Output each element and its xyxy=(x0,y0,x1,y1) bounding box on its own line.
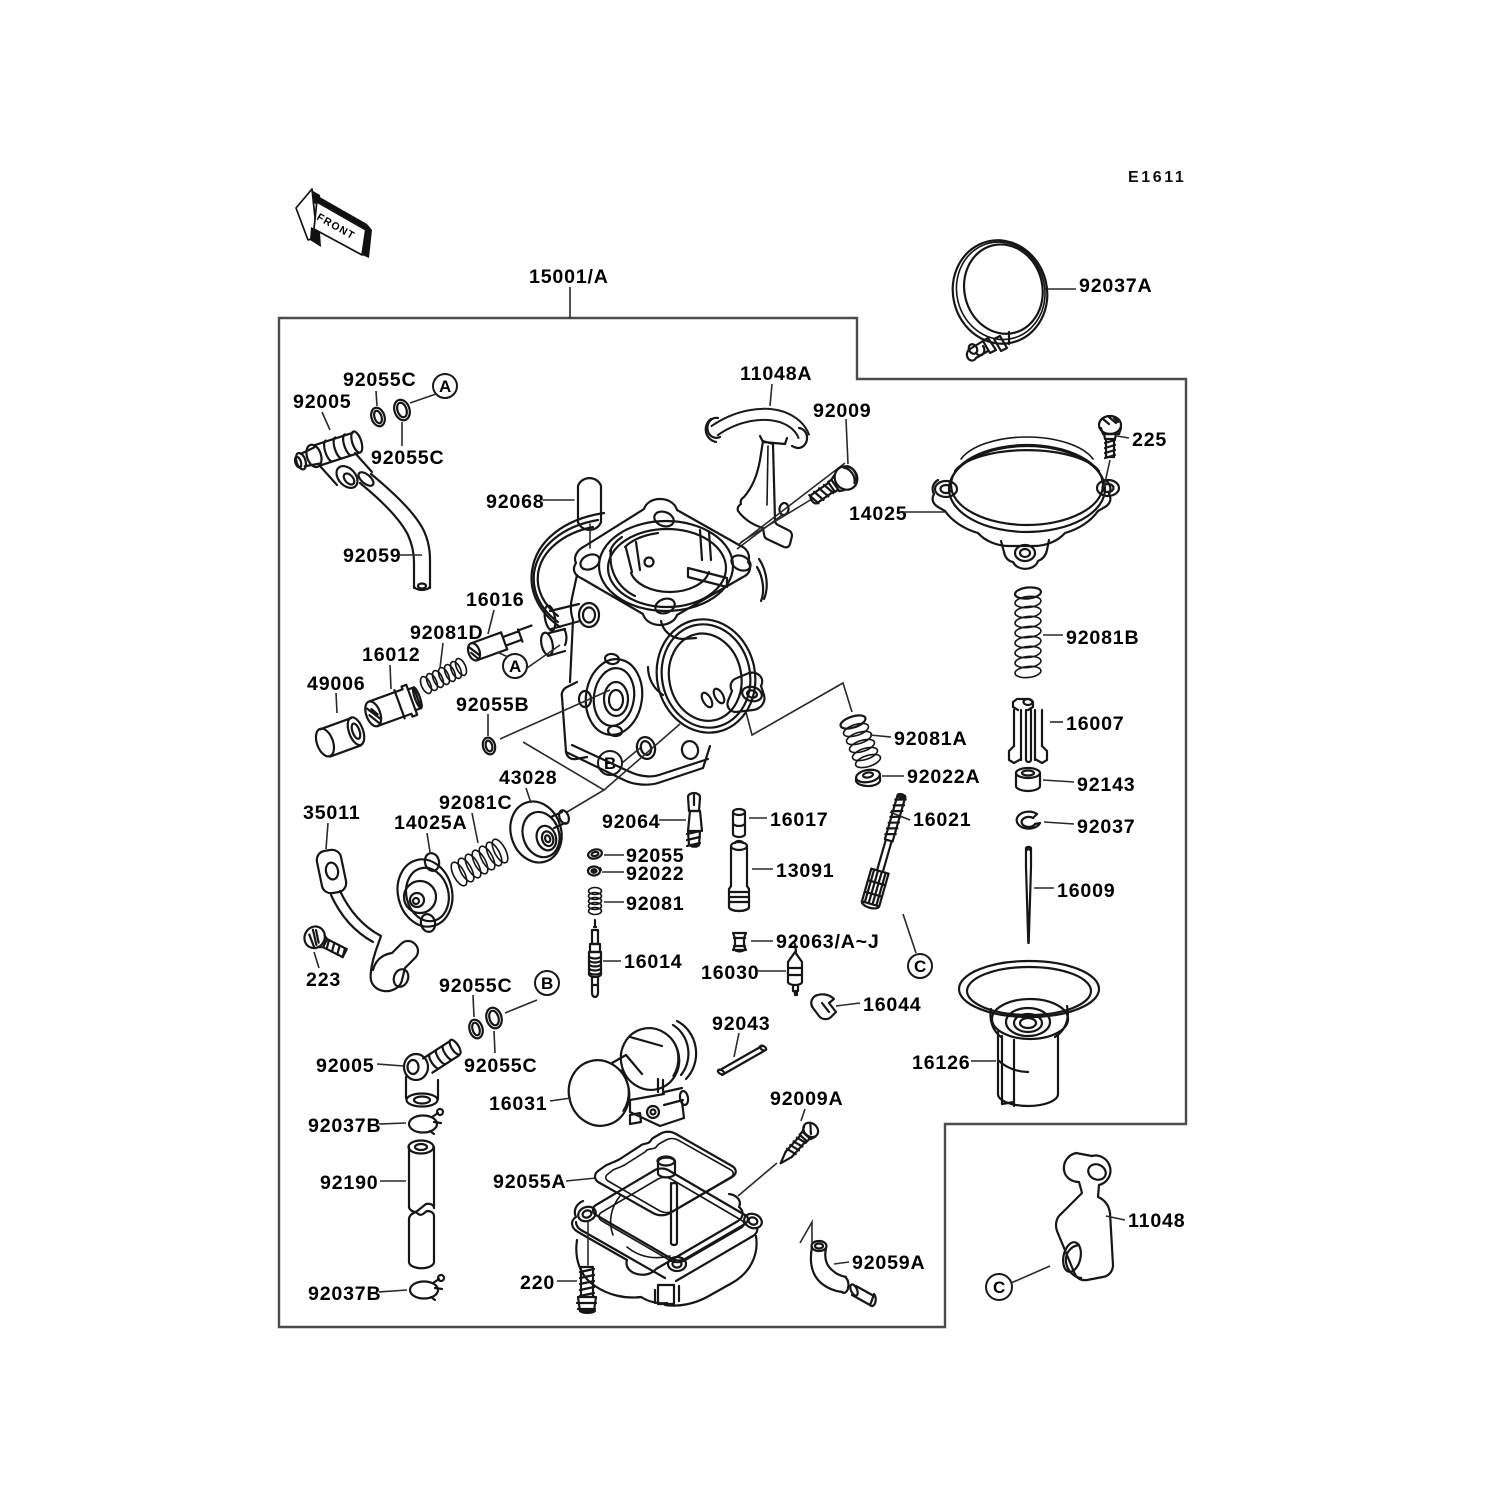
svg-text:16016: 16016 xyxy=(466,589,525,611)
svg-text:92037B: 92037B xyxy=(308,1115,381,1137)
svg-text:14025A: 14025A xyxy=(394,812,467,834)
svg-text:11048A: 11048A xyxy=(740,363,812,385)
svg-text:92081: 92081 xyxy=(626,893,685,915)
svg-text:16017: 16017 xyxy=(770,809,829,831)
svg-text:C: C xyxy=(993,1278,1005,1297)
svg-text:92009A: 92009A xyxy=(770,1088,843,1110)
svg-text:92022A: 92022A xyxy=(907,766,980,788)
svg-text:11048: 11048 xyxy=(1128,1210,1185,1232)
svg-text:A: A xyxy=(509,657,521,676)
svg-text:92081D: 92081D xyxy=(410,622,483,644)
svg-text:92143: 92143 xyxy=(1077,774,1136,796)
svg-text:92190: 92190 xyxy=(320,1172,379,1194)
svg-text:92055C: 92055C xyxy=(371,447,444,469)
svg-text:92055B: 92055B xyxy=(456,694,529,716)
svg-text:E1611: E1611 xyxy=(1128,169,1186,186)
svg-text:13091: 13091 xyxy=(776,860,835,882)
svg-text:16021: 16021 xyxy=(913,809,972,831)
svg-text:92063/A~J: 92063/A~J xyxy=(776,931,880,953)
svg-text:16007: 16007 xyxy=(1066,713,1125,735)
svg-text:220: 220 xyxy=(520,1272,555,1294)
svg-text:92081B: 92081B xyxy=(1066,627,1139,649)
svg-text:92055C: 92055C xyxy=(439,975,512,997)
svg-text:92043: 92043 xyxy=(712,1013,771,1035)
svg-text:16126: 16126 xyxy=(912,1052,971,1074)
svg-text:35011: 35011 xyxy=(303,802,360,824)
svg-text:A: A xyxy=(439,377,451,396)
svg-text:16014: 16014 xyxy=(624,951,683,973)
svg-text:92081A: 92081A xyxy=(894,728,967,750)
svg-text:223: 223 xyxy=(306,969,341,991)
svg-text:92059: 92059 xyxy=(343,545,402,567)
svg-text:15001/A: 15001/A xyxy=(529,266,609,288)
svg-text:92055C: 92055C xyxy=(464,1055,537,1077)
svg-text:92037B: 92037B xyxy=(308,1283,381,1305)
svg-text:92005: 92005 xyxy=(316,1055,375,1077)
svg-text:16012: 16012 xyxy=(362,644,421,666)
svg-text:16031: 16031 xyxy=(489,1093,548,1115)
svg-text:92005: 92005 xyxy=(293,391,352,413)
svg-text:92059A: 92059A xyxy=(852,1252,925,1274)
svg-text:16009: 16009 xyxy=(1057,880,1116,902)
svg-text:92037A: 92037A xyxy=(1079,275,1152,297)
svg-text:92022: 92022 xyxy=(626,863,685,885)
svg-text:43028: 43028 xyxy=(499,767,558,789)
svg-text:92055C: 92055C xyxy=(343,369,416,391)
svg-text:16044: 16044 xyxy=(863,994,922,1016)
svg-text:92009: 92009 xyxy=(813,400,872,422)
svg-text:49006: 49006 xyxy=(307,673,366,695)
svg-text:14025: 14025 xyxy=(849,503,908,525)
svg-text:92037: 92037 xyxy=(1077,816,1136,838)
svg-text:C: C xyxy=(914,957,926,976)
svg-text:B: B xyxy=(541,974,553,993)
svg-text:92064: 92064 xyxy=(602,811,661,833)
svg-text:92068: 92068 xyxy=(486,491,545,513)
svg-text:92055A: 92055A xyxy=(493,1171,566,1193)
svg-text:16030: 16030 xyxy=(701,962,760,984)
svg-text:92081C: 92081C xyxy=(439,792,512,814)
svg-text:225: 225 xyxy=(1132,429,1167,451)
